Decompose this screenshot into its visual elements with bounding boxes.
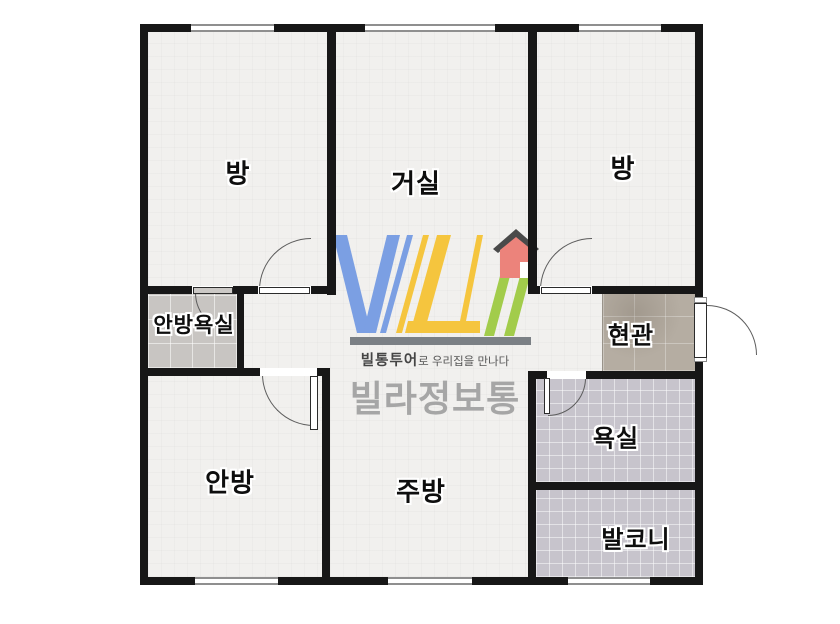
logo-v-stroke: [333, 235, 371, 333]
window-kitchen-bottom: [388, 577, 472, 585]
watermark-brand: 빌라정보통: [326, 370, 544, 422]
door-arc-entrance: [707, 305, 757, 355]
logo-l-foot: [405, 321, 480, 333]
room-label-master-bedroom: 안방: [205, 463, 255, 500]
window-bedroom-bottom: [195, 577, 278, 585]
door-opening-master-bedroom: [260, 368, 317, 376]
logo-i-stroke: [504, 276, 530, 336]
door-leaf-room2: [541, 287, 591, 294]
door-opening-bathroom: [547, 371, 586, 379]
wall-bedroom-kitchen: [322, 368, 330, 585]
floor-plan-canvas: 빌통투어로 우리집을 만나다 빌라정보통 방 거실 방 안방: [0, 0, 840, 624]
wall-room1-living: [327, 24, 336, 295]
door-leaf-bathroom: [544, 378, 550, 414]
window-room1-top: [191, 24, 274, 32]
logo-baseline-bar: [350, 337, 531, 345]
watermark-tagline-rest: 로 우리집을 만나다: [418, 356, 509, 368]
logo-l-stroke: [410, 235, 451, 333]
wall-bath-left: [528, 371, 536, 585]
wall-outer-left: [140, 24, 148, 585]
door-leaf-room1: [259, 287, 310, 294]
vili-logo: [330, 228, 540, 348]
room-label-balcony: 발코니: [601, 520, 670, 555]
wall-living-room2: [528, 24, 537, 291]
room-label-room-top-right: 방: [611, 149, 636, 186]
wall-mbath-right: [237, 294, 244, 376]
window-balcony-bottom: [568, 577, 650, 585]
door-leaf-entrance: [694, 303, 707, 358]
room-label-entrance: 현관: [608, 316, 654, 351]
window-room2-top: [579, 24, 661, 32]
door-leaf-master-bedroom: [310, 376, 318, 430]
logo-i-stroke: [460, 235, 483, 321]
room-label-room-top-left: 방: [226, 154, 251, 191]
wall-bath-balcony: [528, 482, 703, 490]
watermark-tagline-bold: 빌통투어: [361, 353, 418, 369]
watermark-tagline: 빌통투어로 우리집을 만나다: [328, 349, 542, 370]
door-leaf-master-bathroom: [193, 287, 233, 294]
room-label-kitchen: 주방: [396, 472, 446, 509]
room-label-bathroom: 욕실: [593, 419, 639, 454]
logo-i-stroke: [484, 276, 510, 336]
room-label-living-room: 거실: [391, 164, 441, 201]
room-label-master-bathroom: 안방욕실: [153, 309, 234, 339]
window-living-top: [365, 24, 495, 32]
